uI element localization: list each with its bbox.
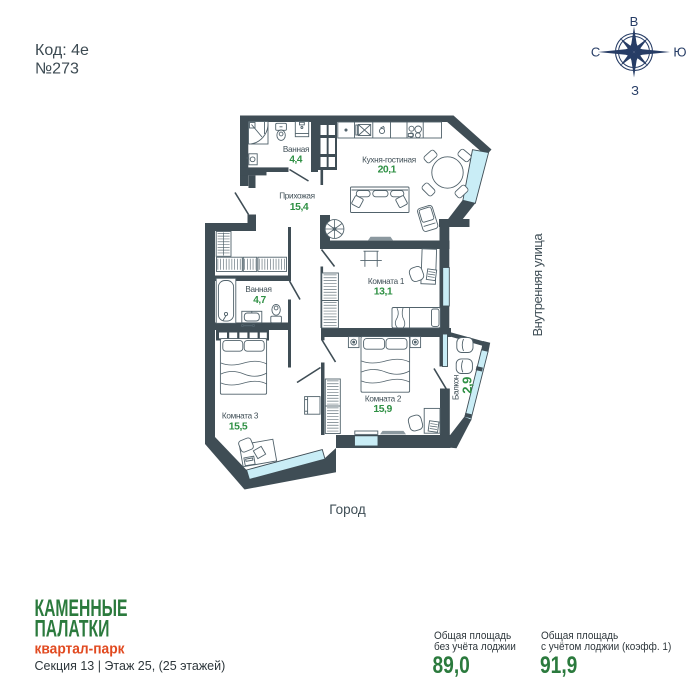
svg-text:4,4: 4,4 <box>289 155 302 166</box>
svg-text:квартал-парк: квартал-парк <box>35 640 126 656</box>
svg-text:15,5: 15,5 <box>229 422 248 433</box>
svg-text:№273: №273 <box>35 61 79 78</box>
svg-text:Ю: Ю <box>673 45 686 60</box>
svg-text:С: С <box>591 45 600 60</box>
svg-text:15,4: 15,4 <box>290 202 309 213</box>
svg-text:91,9: 91,9 <box>540 651 577 679</box>
svg-text:З: З <box>631 83 639 98</box>
svg-text:15,9: 15,9 <box>373 404 392 415</box>
svg-text:ПАЛАТКИ: ПАЛАТКИ <box>35 616 110 642</box>
svg-text:Город: Город <box>329 502 366 517</box>
svg-text:Ванная: Ванная <box>283 145 309 154</box>
svg-text:13,1: 13,1 <box>374 286 393 297</box>
svg-text:В: В <box>630 14 639 29</box>
svg-text:Ванная: Ванная <box>245 285 271 294</box>
svg-text:Код: 4е: Код: 4е <box>35 42 89 59</box>
svg-text:2,9: 2,9 <box>460 377 475 394</box>
svg-text:Прихожая: Прихожая <box>279 191 315 200</box>
svg-text:Комната 1: Комната 1 <box>368 277 405 286</box>
svg-text:89,0: 89,0 <box>433 651 470 679</box>
svg-text:Комната 2: Комната 2 <box>365 395 402 404</box>
svg-text:Комната 3: Комната 3 <box>222 412 259 421</box>
svg-text:Внутренняя улица: Внутренняя улица <box>530 233 545 337</box>
svg-text:Кухня-гостиная: Кухня-гостиная <box>362 155 416 164</box>
svg-text:Секция 13 | Этаж 25, (25 этаже: Секция 13 | Этаж 25, (25 этажей) <box>35 659 226 673</box>
svg-text:20,1: 20,1 <box>378 165 397 176</box>
svg-text:4,7: 4,7 <box>253 295 266 306</box>
